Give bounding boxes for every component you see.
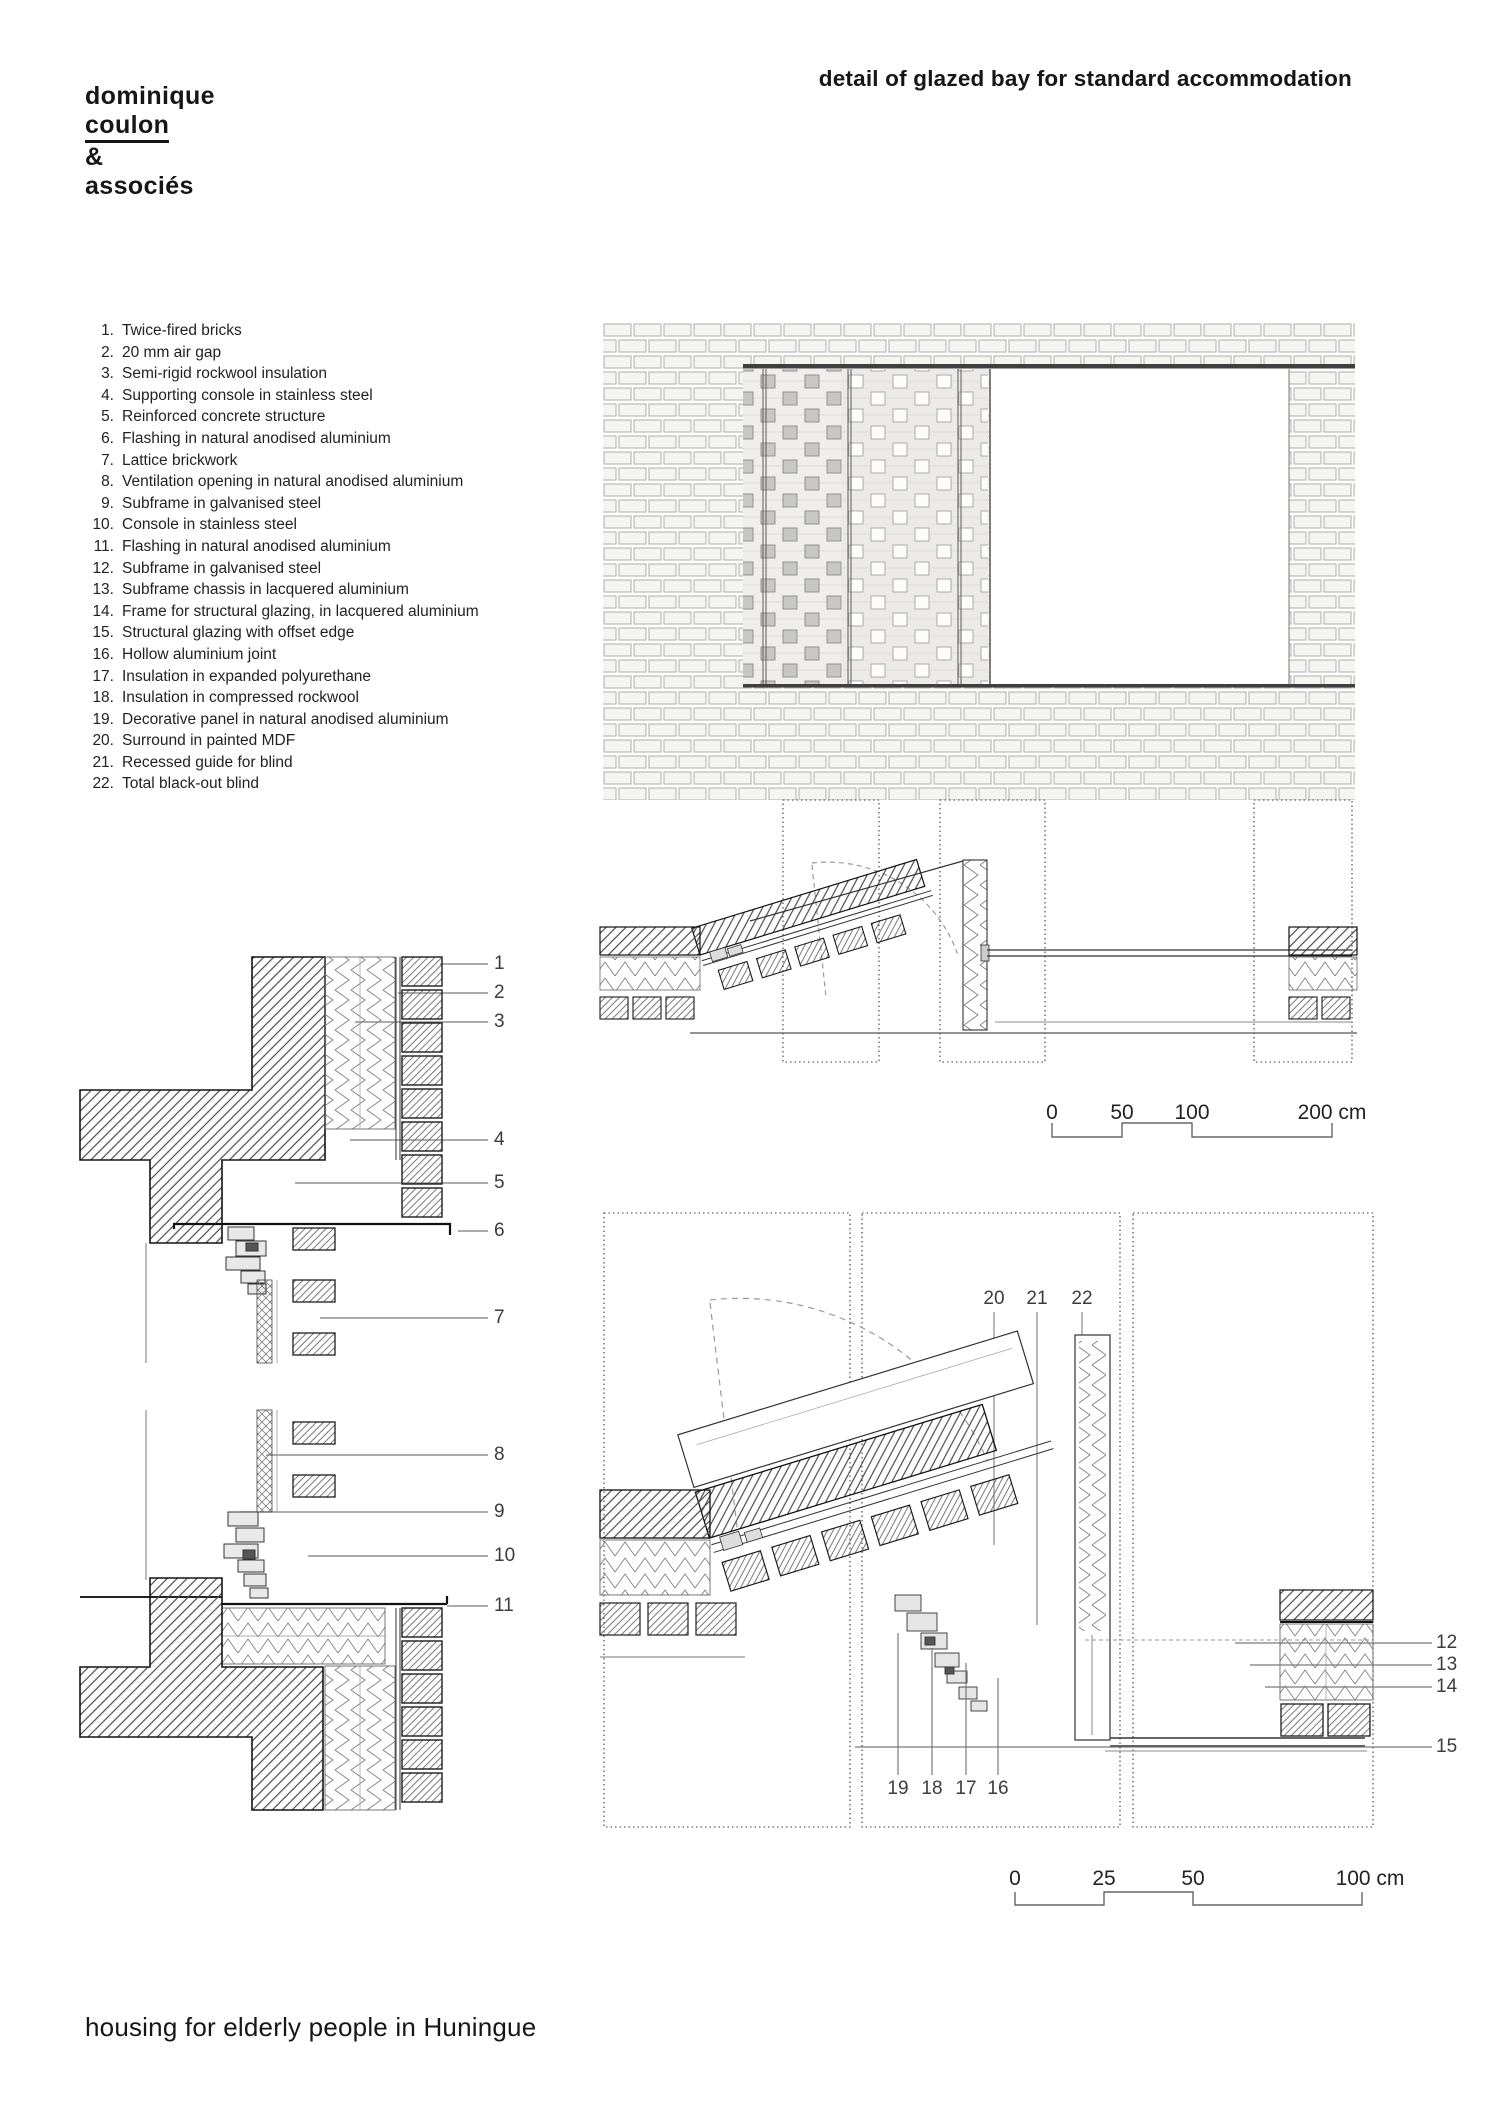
central-frame-cluster bbox=[895, 1595, 987, 1711]
scale-tick-0: 0 bbox=[1046, 1101, 1058, 1124]
callout-2: 2 bbox=[494, 982, 505, 1004]
fixed-glazing-large bbox=[1105, 1738, 1367, 1751]
concrete-structure-upper bbox=[80, 957, 325, 1243]
plan-section-large: 0 25 50 100 cm bbox=[595, 1205, 1445, 1915]
subframe-strip-upper bbox=[257, 1280, 272, 1363]
detail-callout-boxes bbox=[783, 800, 1352, 1062]
tilted-vent-assembly-large bbox=[678, 1331, 1066, 1593]
callout-3: 3 bbox=[494, 1011, 505, 1033]
scale-bar-large: 0 50 100 200 cm bbox=[1046, 1101, 1365, 1137]
legend-item: 20.Surround in painted MDF bbox=[86, 730, 479, 752]
firm-logo: dominique coulon & associés bbox=[85, 82, 215, 201]
scale2-tick-50: 50 bbox=[1181, 1867, 1204, 1890]
legend-item: 18.Insulation in compressed rockwool bbox=[86, 687, 479, 709]
legend-item: 10.Console in stainless steel bbox=[86, 514, 479, 536]
elevation-drawing bbox=[603, 322, 1355, 800]
legend-item: 2.20 mm air gap bbox=[86, 342, 479, 364]
callout-20: 20 bbox=[983, 1288, 1004, 1310]
legend-item: 17.Insulation in expanded polyurethane bbox=[86, 666, 479, 688]
callout-18: 18 bbox=[921, 1778, 942, 1800]
legend-item: 19.Decorative panel in natural anodised … bbox=[86, 709, 479, 731]
brick-veneer-upper bbox=[402, 957, 442, 1217]
callout-4: 4 bbox=[494, 1129, 505, 1151]
drawing-sheet: dominique coulon & associés detail of gl… bbox=[0, 0, 1500, 2123]
callout-17: 17 bbox=[955, 1778, 976, 1800]
scale2-tick-0: 0 bbox=[1009, 1867, 1021, 1890]
legend-item: 14.Frame for structural glazing, in lacq… bbox=[86, 601, 479, 623]
callout-21: 21 bbox=[1026, 1288, 1047, 1310]
callout-11: 11 bbox=[494, 1595, 514, 1617]
callout-1: 1 bbox=[494, 953, 505, 975]
legend-item: 3.Semi-rigid rockwool insulation bbox=[86, 363, 479, 385]
lintel-line bbox=[743, 364, 1355, 369]
blind-guide-post-large bbox=[1075, 1335, 1110, 1740]
legend-item: 9.Subframe in galvanised steel bbox=[86, 493, 479, 515]
callout-22: 22 bbox=[1071, 1288, 1092, 1310]
tilted-vent-assembly bbox=[692, 858, 941, 993]
lattice-brickwork-closed bbox=[743, 369, 841, 687]
brick-veneer-lower bbox=[402, 1608, 442, 1802]
callout-16: 16 bbox=[987, 1778, 1008, 1800]
callout-10: 10 bbox=[494, 1545, 515, 1567]
legend-item: 11.Flashing in natural anodised aluminiu… bbox=[86, 536, 479, 558]
legend-item: 4.Supporting console in stainless steel bbox=[86, 385, 479, 407]
right-wall-layers bbox=[1289, 927, 1357, 1019]
sill-line bbox=[743, 684, 1355, 688]
legend-item: 12.Subframe in galvanised steel bbox=[86, 558, 479, 580]
legend-item: 7.Lattice brickwork bbox=[86, 450, 479, 472]
callout-12: 12 bbox=[1436, 1632, 1457, 1654]
scale2-tick-100: 100 cm bbox=[1336, 1867, 1405, 1890]
sill-frame-cluster bbox=[224, 1512, 268, 1598]
scale2-tick-25: 25 bbox=[1092, 1867, 1115, 1890]
scale-tick-200: 200 cm bbox=[1298, 1101, 1365, 1124]
legend-item: 21.Recessed guide for blind bbox=[86, 752, 479, 774]
logo-line-1: dominique bbox=[85, 82, 215, 111]
left-wall-layers bbox=[600, 927, 700, 1019]
plan-section-small: 0 50 100 200 cm bbox=[595, 785, 1365, 1145]
legend-item: 5.Reinforced concrete structure bbox=[86, 406, 479, 428]
callout-5: 5 bbox=[494, 1172, 505, 1194]
legend-item: 15.Structural glazing with offset edge bbox=[86, 622, 479, 644]
legend-item: 13.Subframe chassis in lacquered alumini… bbox=[86, 579, 479, 601]
callout-19: 19 bbox=[887, 1778, 908, 1800]
materials-legend: 1.Twice-fired bricks 2.20 mm air gap 3.S… bbox=[86, 320, 479, 795]
right-wall-layers-large bbox=[1280, 1590, 1373, 1736]
legend-item: 6.Flashing in natural anodised aluminium bbox=[86, 428, 479, 450]
lattice-bricks-mid bbox=[293, 1228, 335, 1497]
project-title: housing for elderly people in Huningue bbox=[85, 2012, 536, 2043]
logo-line-4: associés bbox=[85, 172, 215, 201]
legend-item: 8.Ventilation opening in natural anodise… bbox=[86, 471, 479, 493]
scale-tick-50: 50 bbox=[1110, 1101, 1133, 1124]
callout-6: 6 bbox=[494, 1220, 505, 1242]
callout-8: 8 bbox=[494, 1444, 505, 1466]
logo-line-3: & bbox=[85, 143, 215, 172]
section-detail-head-sill bbox=[78, 950, 510, 1830]
logo-line-2: coulon bbox=[85, 111, 215, 143]
legend-item: 16.Hollow aluminium joint bbox=[86, 644, 479, 666]
callout-7: 7 bbox=[494, 1307, 505, 1329]
lattice-brickwork-open bbox=[841, 369, 988, 687]
callout-15: 15 bbox=[1436, 1736, 1457, 1758]
glazed-bay-opening bbox=[989, 369, 1289, 687]
callout-9: 9 bbox=[494, 1501, 505, 1523]
scale-tick-100: 100 bbox=[1174, 1101, 1209, 1124]
callout-13: 13 bbox=[1436, 1654, 1457, 1676]
legend-item: 1.Twice-fired bricks bbox=[86, 320, 479, 342]
scale-bar-small: 0 25 50 100 cm bbox=[1009, 1867, 1404, 1905]
legend-item: 22.Total black-out blind bbox=[86, 773, 479, 795]
callout-14: 14 bbox=[1436, 1676, 1457, 1698]
sheet-title: detail of glazed bay for standard accomm… bbox=[819, 66, 1352, 92]
subframe-strip-lower bbox=[257, 1410, 272, 1512]
